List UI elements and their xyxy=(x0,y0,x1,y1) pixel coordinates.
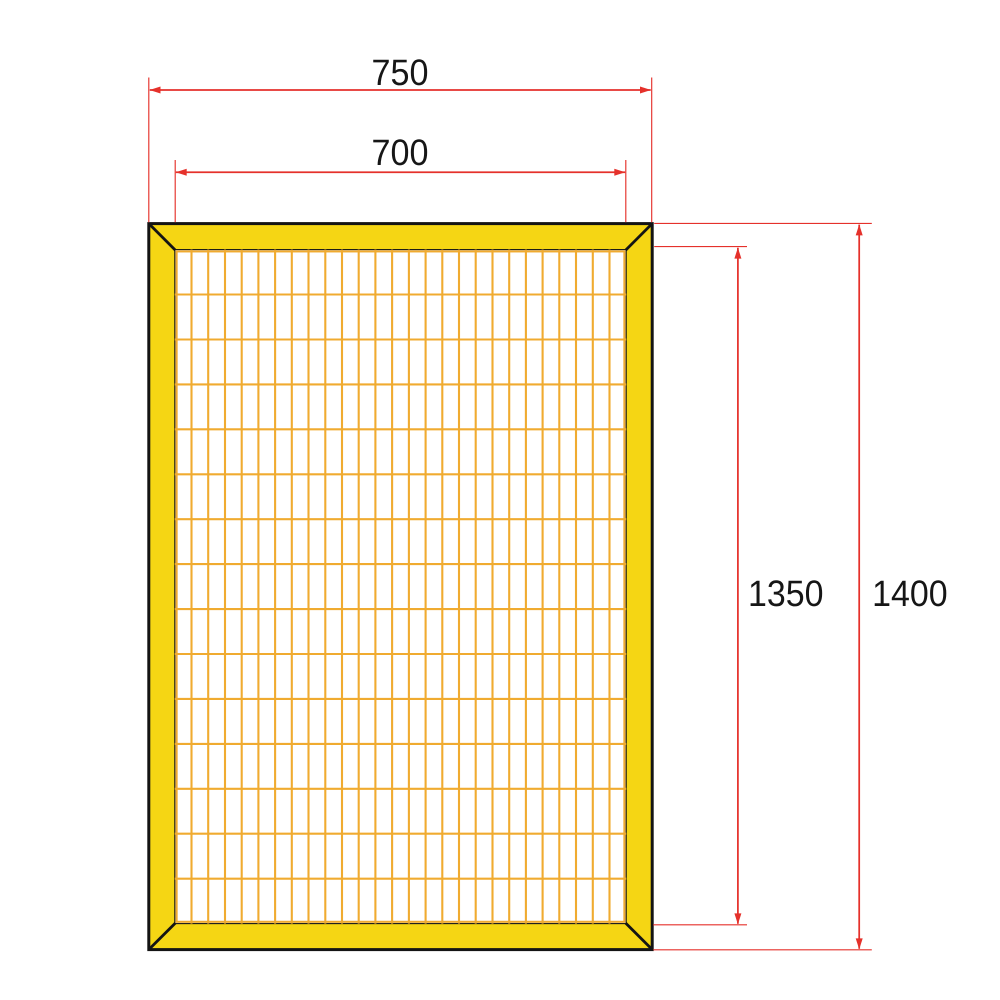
svg-text:1400: 1400 xyxy=(872,573,948,614)
svg-text:750: 750 xyxy=(372,52,429,93)
svg-text:1350: 1350 xyxy=(748,573,824,614)
svg-text:700: 700 xyxy=(372,132,429,173)
